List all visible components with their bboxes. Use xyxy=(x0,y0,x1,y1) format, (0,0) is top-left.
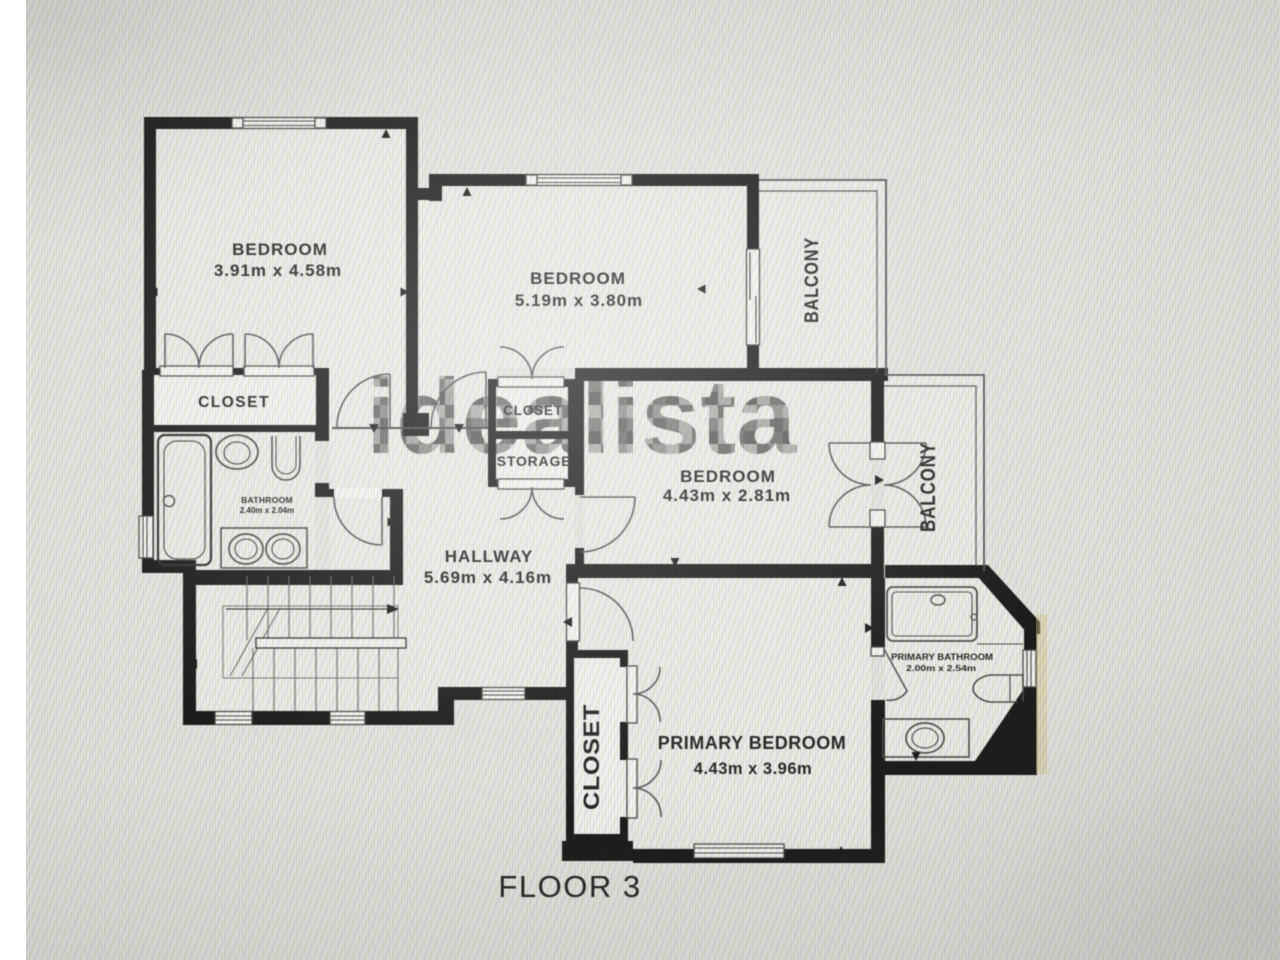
svg-text:HALLWAY: HALLWAY xyxy=(445,547,534,566)
svg-text:BALCONY: BALCONY xyxy=(917,442,940,532)
svg-text:CLOSET: CLOSET xyxy=(503,403,563,418)
svg-text:4.43m x 3.96m: 4.43m x 3.96m xyxy=(694,760,812,778)
svg-text:BEDROOM: BEDROOM xyxy=(232,240,328,259)
svg-text:5.69m x 4.16m: 5.69m x 4.16m xyxy=(424,568,552,587)
svg-text:FLOOR 3: FLOOR 3 xyxy=(498,869,641,904)
svg-text:2.40m x 2.04m: 2.40m x 2.04m xyxy=(240,506,294,515)
svg-text:3.91m x 4.58m: 3.91m x 4.58m xyxy=(214,261,342,280)
svg-text:BEDROOM: BEDROOM xyxy=(530,269,626,288)
svg-text:CLOSET: CLOSET xyxy=(579,704,604,810)
svg-text:PRIMARY BEDROOM: PRIMARY BEDROOM xyxy=(658,733,847,753)
svg-text:BALCONY: BALCONY xyxy=(802,237,823,323)
svg-text:STORAGE: STORAGE xyxy=(497,453,572,469)
svg-text:BEDROOM: BEDROOM xyxy=(680,467,776,486)
svg-text:CLOSET: CLOSET xyxy=(198,394,270,411)
svg-text:2.00m x 2.54m: 2.00m x 2.54m xyxy=(906,663,977,673)
svg-text:PRIMARY BATHROOM: PRIMARY BATHROOM xyxy=(891,652,993,663)
svg-text:4.43m x 2.81m: 4.43m x 2.81m xyxy=(663,486,791,505)
svg-text:BATHROOM: BATHROOM xyxy=(241,495,293,505)
svg-text:5.19m x 3.80m: 5.19m x 3.80m xyxy=(515,291,643,310)
